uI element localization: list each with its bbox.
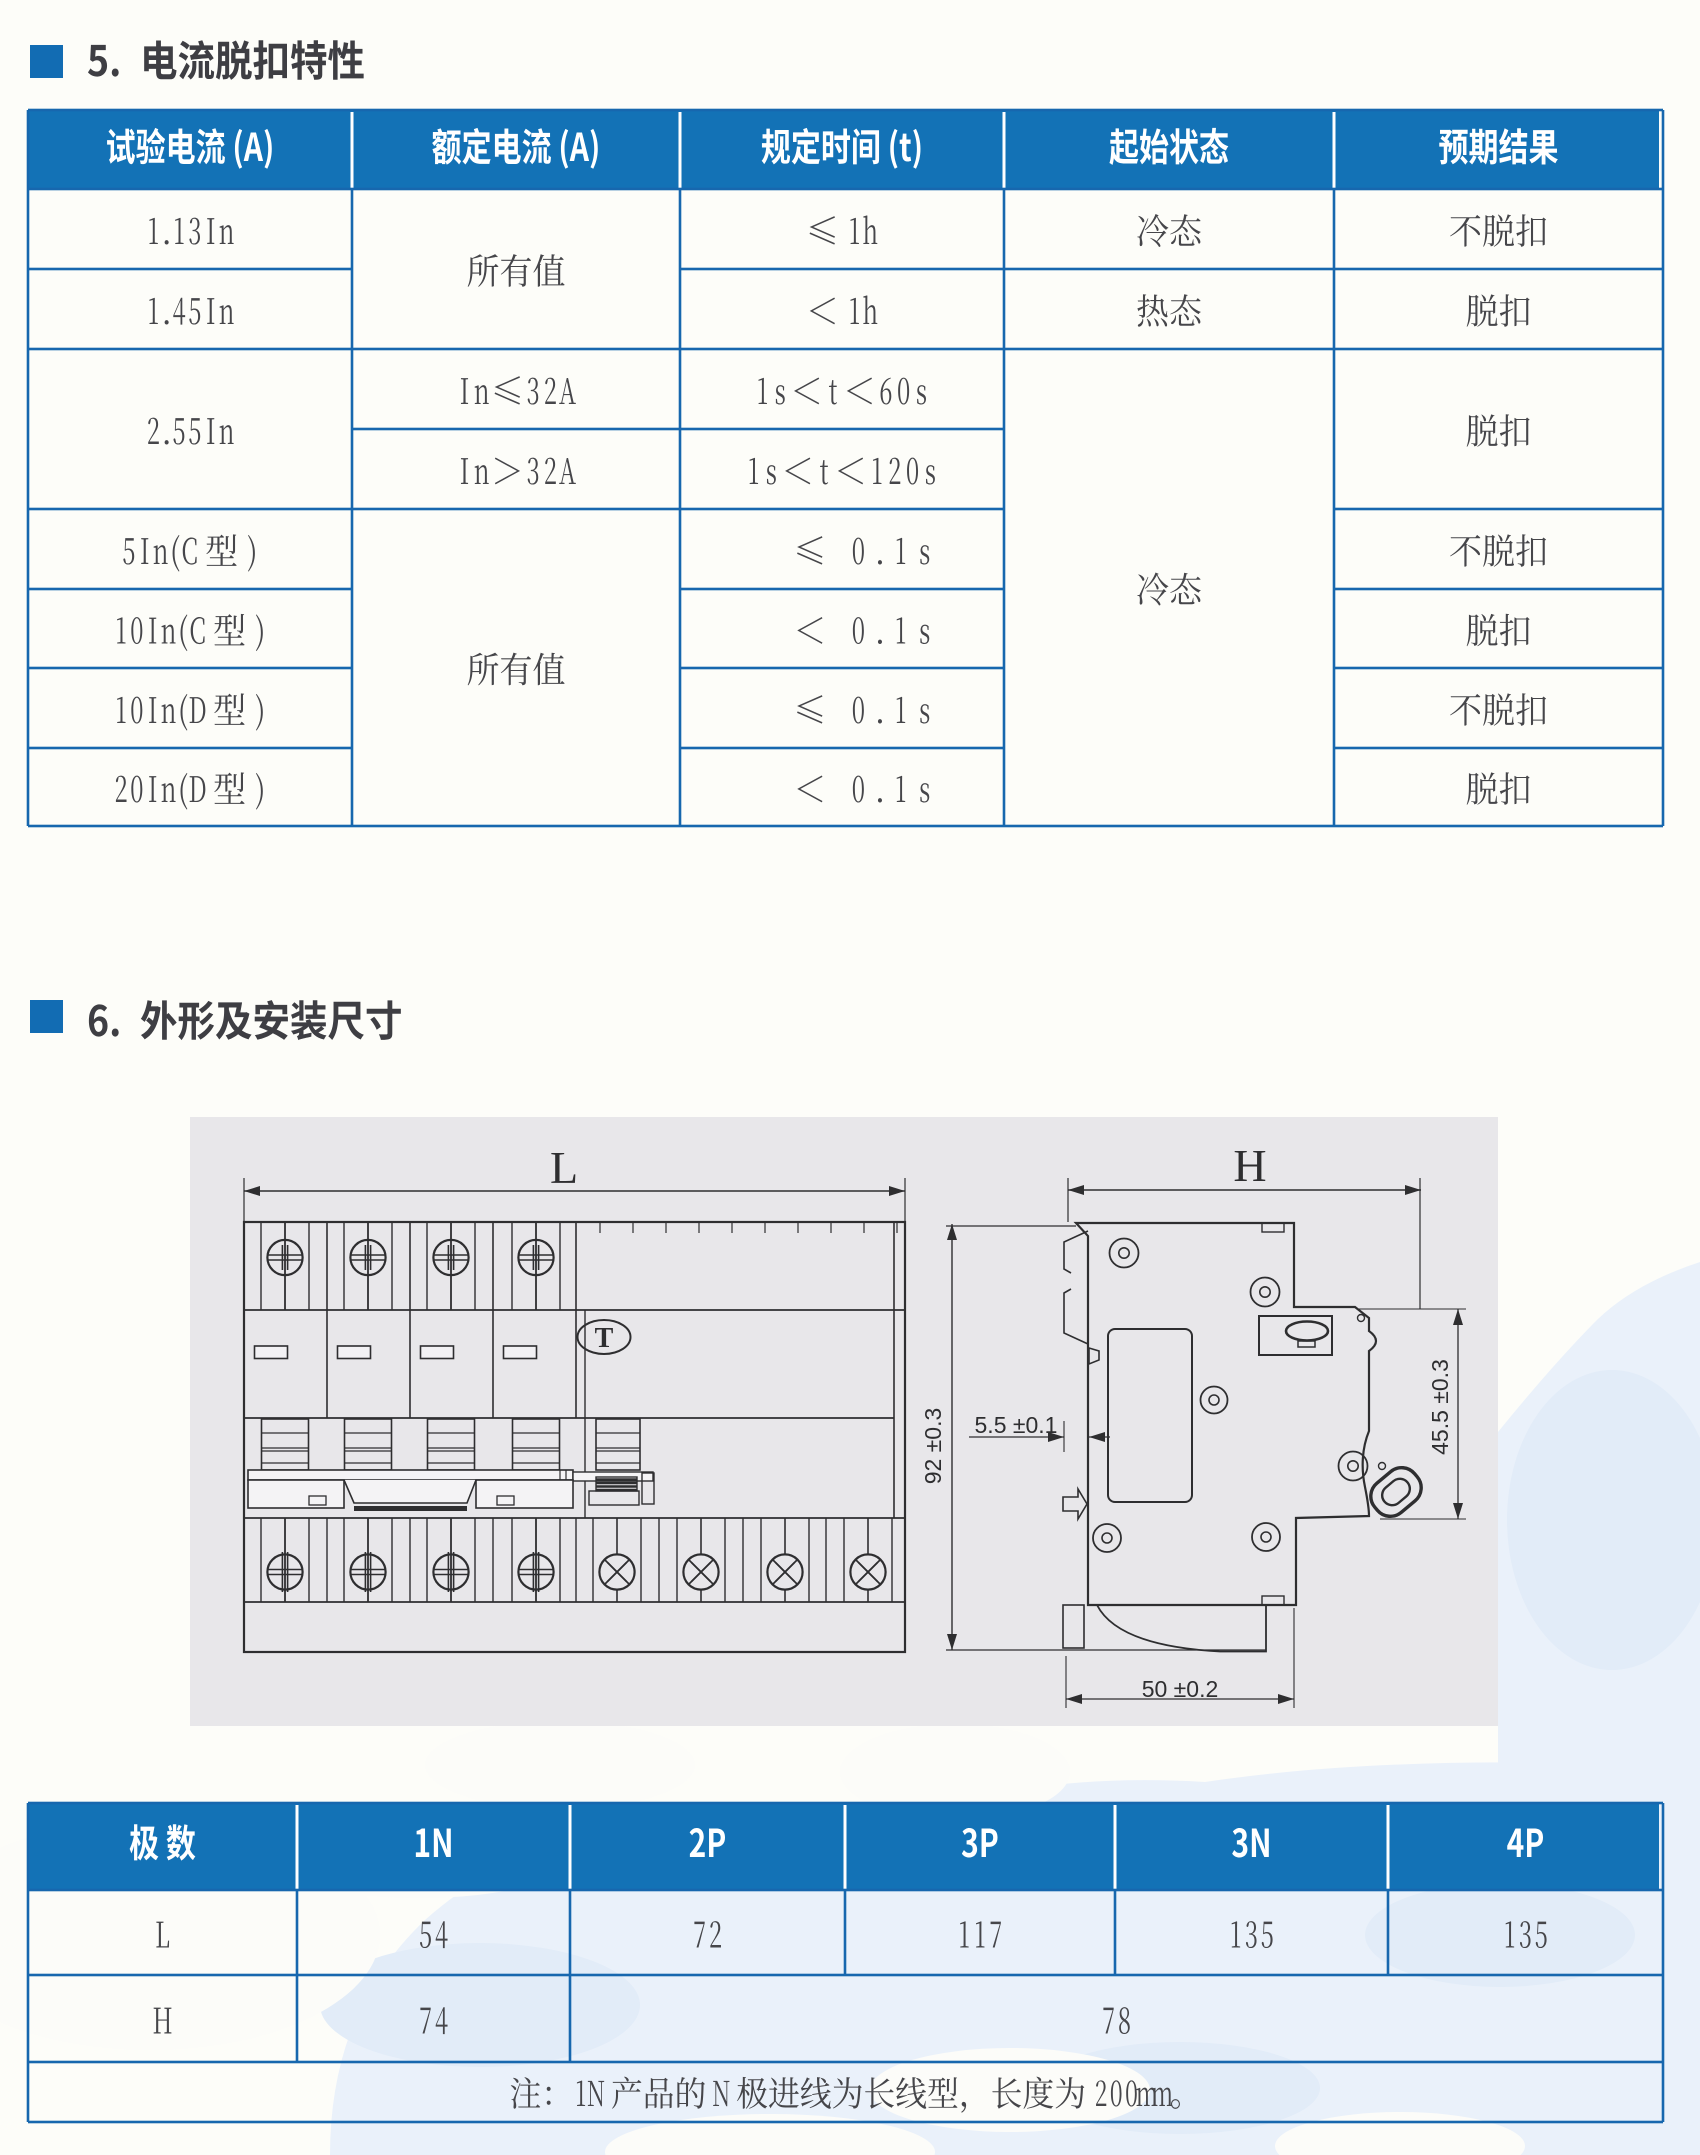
svg-text:50 ±0.2: 50 ±0.2 bbox=[1142, 1676, 1219, 1702]
svg-text:5.5 ±0.1: 5.5 ±0.1 bbox=[975, 1412, 1058, 1438]
svg-text:L: L bbox=[550, 1142, 578, 1193]
svg-text:H: H bbox=[1233, 1140, 1266, 1191]
svg-text:92 ±0.3: 92 ±0.3 bbox=[920, 1408, 946, 1485]
svg-text:45.5 ±0.3: 45.5 ±0.3 bbox=[1427, 1359, 1453, 1455]
svg-text:T: T bbox=[595, 1323, 614, 1354]
